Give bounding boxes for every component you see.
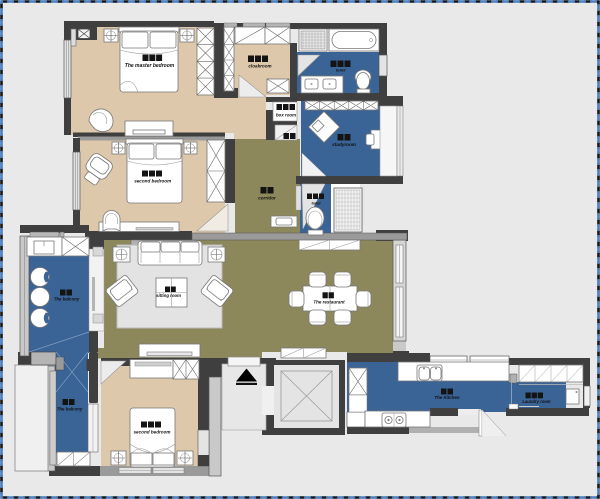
svg-text:toilet: toilet: [311, 202, 321, 206]
svg-text:studyroom: studyroom: [332, 142, 356, 147]
svg-text:Laundry room: Laundry room: [522, 399, 550, 404]
svg-text:The balcony: The balcony: [54, 297, 80, 302]
svg-text:second bedroom: second bedroom: [134, 178, 171, 183]
svg-text:toilet: toilet: [336, 68, 346, 73]
svg-text:The Kitchen: The Kitchen: [434, 395, 459, 400]
svg-text:box room: box room: [276, 113, 296, 118]
svg-text:sitting room: sitting room: [156, 293, 181, 298]
svg-text:corridor: corridor: [258, 196, 276, 201]
svg-text:cloakroom: cloakroom: [248, 63, 271, 68]
svg-text:The master bedroom: The master bedroom: [125, 63, 175, 69]
svg-text:The restaurant: The restaurant: [313, 300, 345, 305]
svg-text:second bedroom: second bedroom: [133, 429, 170, 434]
svg-text:The balcony: The balcony: [57, 407, 83, 412]
